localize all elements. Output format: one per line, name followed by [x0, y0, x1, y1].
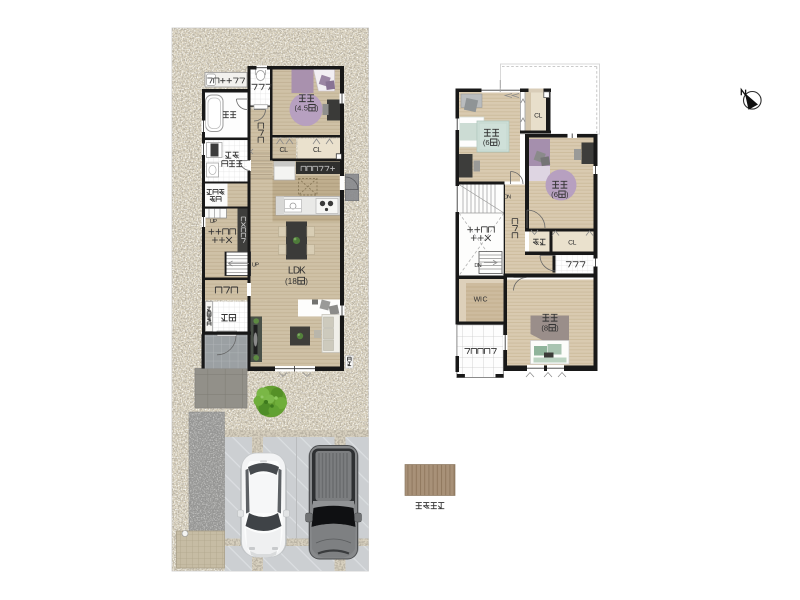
svg-text:L: L: [284, 147, 288, 154]
svg-text:8: 8: [544, 324, 548, 333]
svg-text:N: N: [507, 194, 511, 200]
svg-text:6: 6: [554, 190, 558, 199]
svg-text:C: C: [483, 297, 488, 304]
svg-text:P: P: [213, 219, 217, 225]
svg-text:L: L: [318, 147, 322, 154]
svg-text:N: N: [478, 263, 482, 269]
svg-text:5: 5: [304, 104, 308, 113]
svg-text:8: 8: [292, 277, 297, 286]
svg-text:P: P: [255, 263, 259, 269]
svg-text:K: K: [299, 266, 306, 277]
svg-text:6: 6: [485, 138, 489, 147]
svg-text:L: L: [573, 240, 577, 247]
svg-text:): ): [305, 277, 308, 286]
svg-text:L: L: [539, 112, 543, 119]
